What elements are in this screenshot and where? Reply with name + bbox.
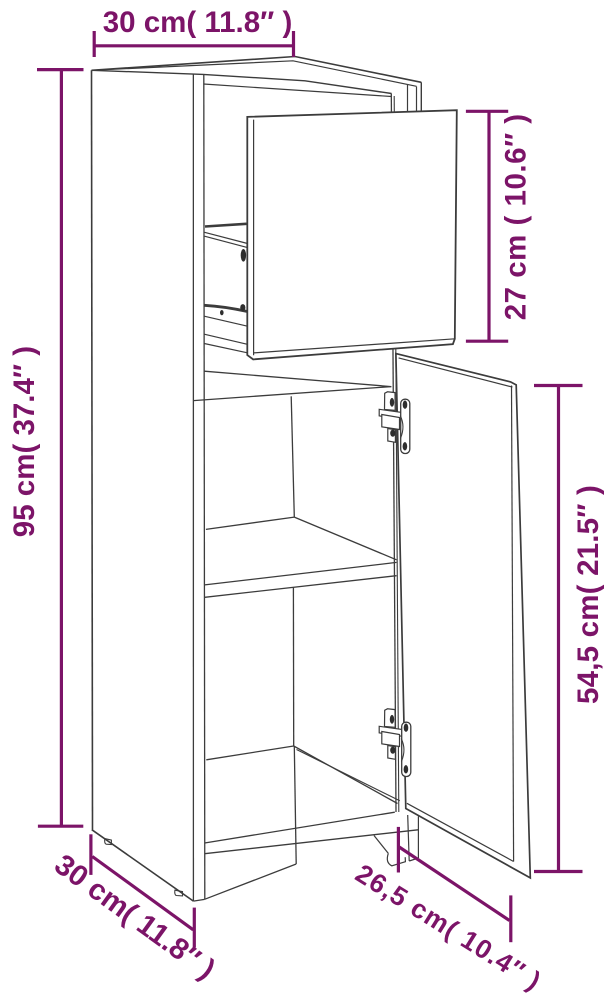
svg-text:27 cm ( 10.6″ ): 27 cm ( 10.6″ ) (500, 113, 533, 320)
svg-text:54,5 cm( 21.5″ ): 54,5 cm( 21.5″ ) (572, 485, 605, 704)
svg-text:95 cm( 37.4″ ): 95 cm( 37.4″ ) (8, 346, 41, 537)
svg-text:30 cm( 11.8″ ): 30 cm( 11.8″ ) (103, 6, 293, 39)
